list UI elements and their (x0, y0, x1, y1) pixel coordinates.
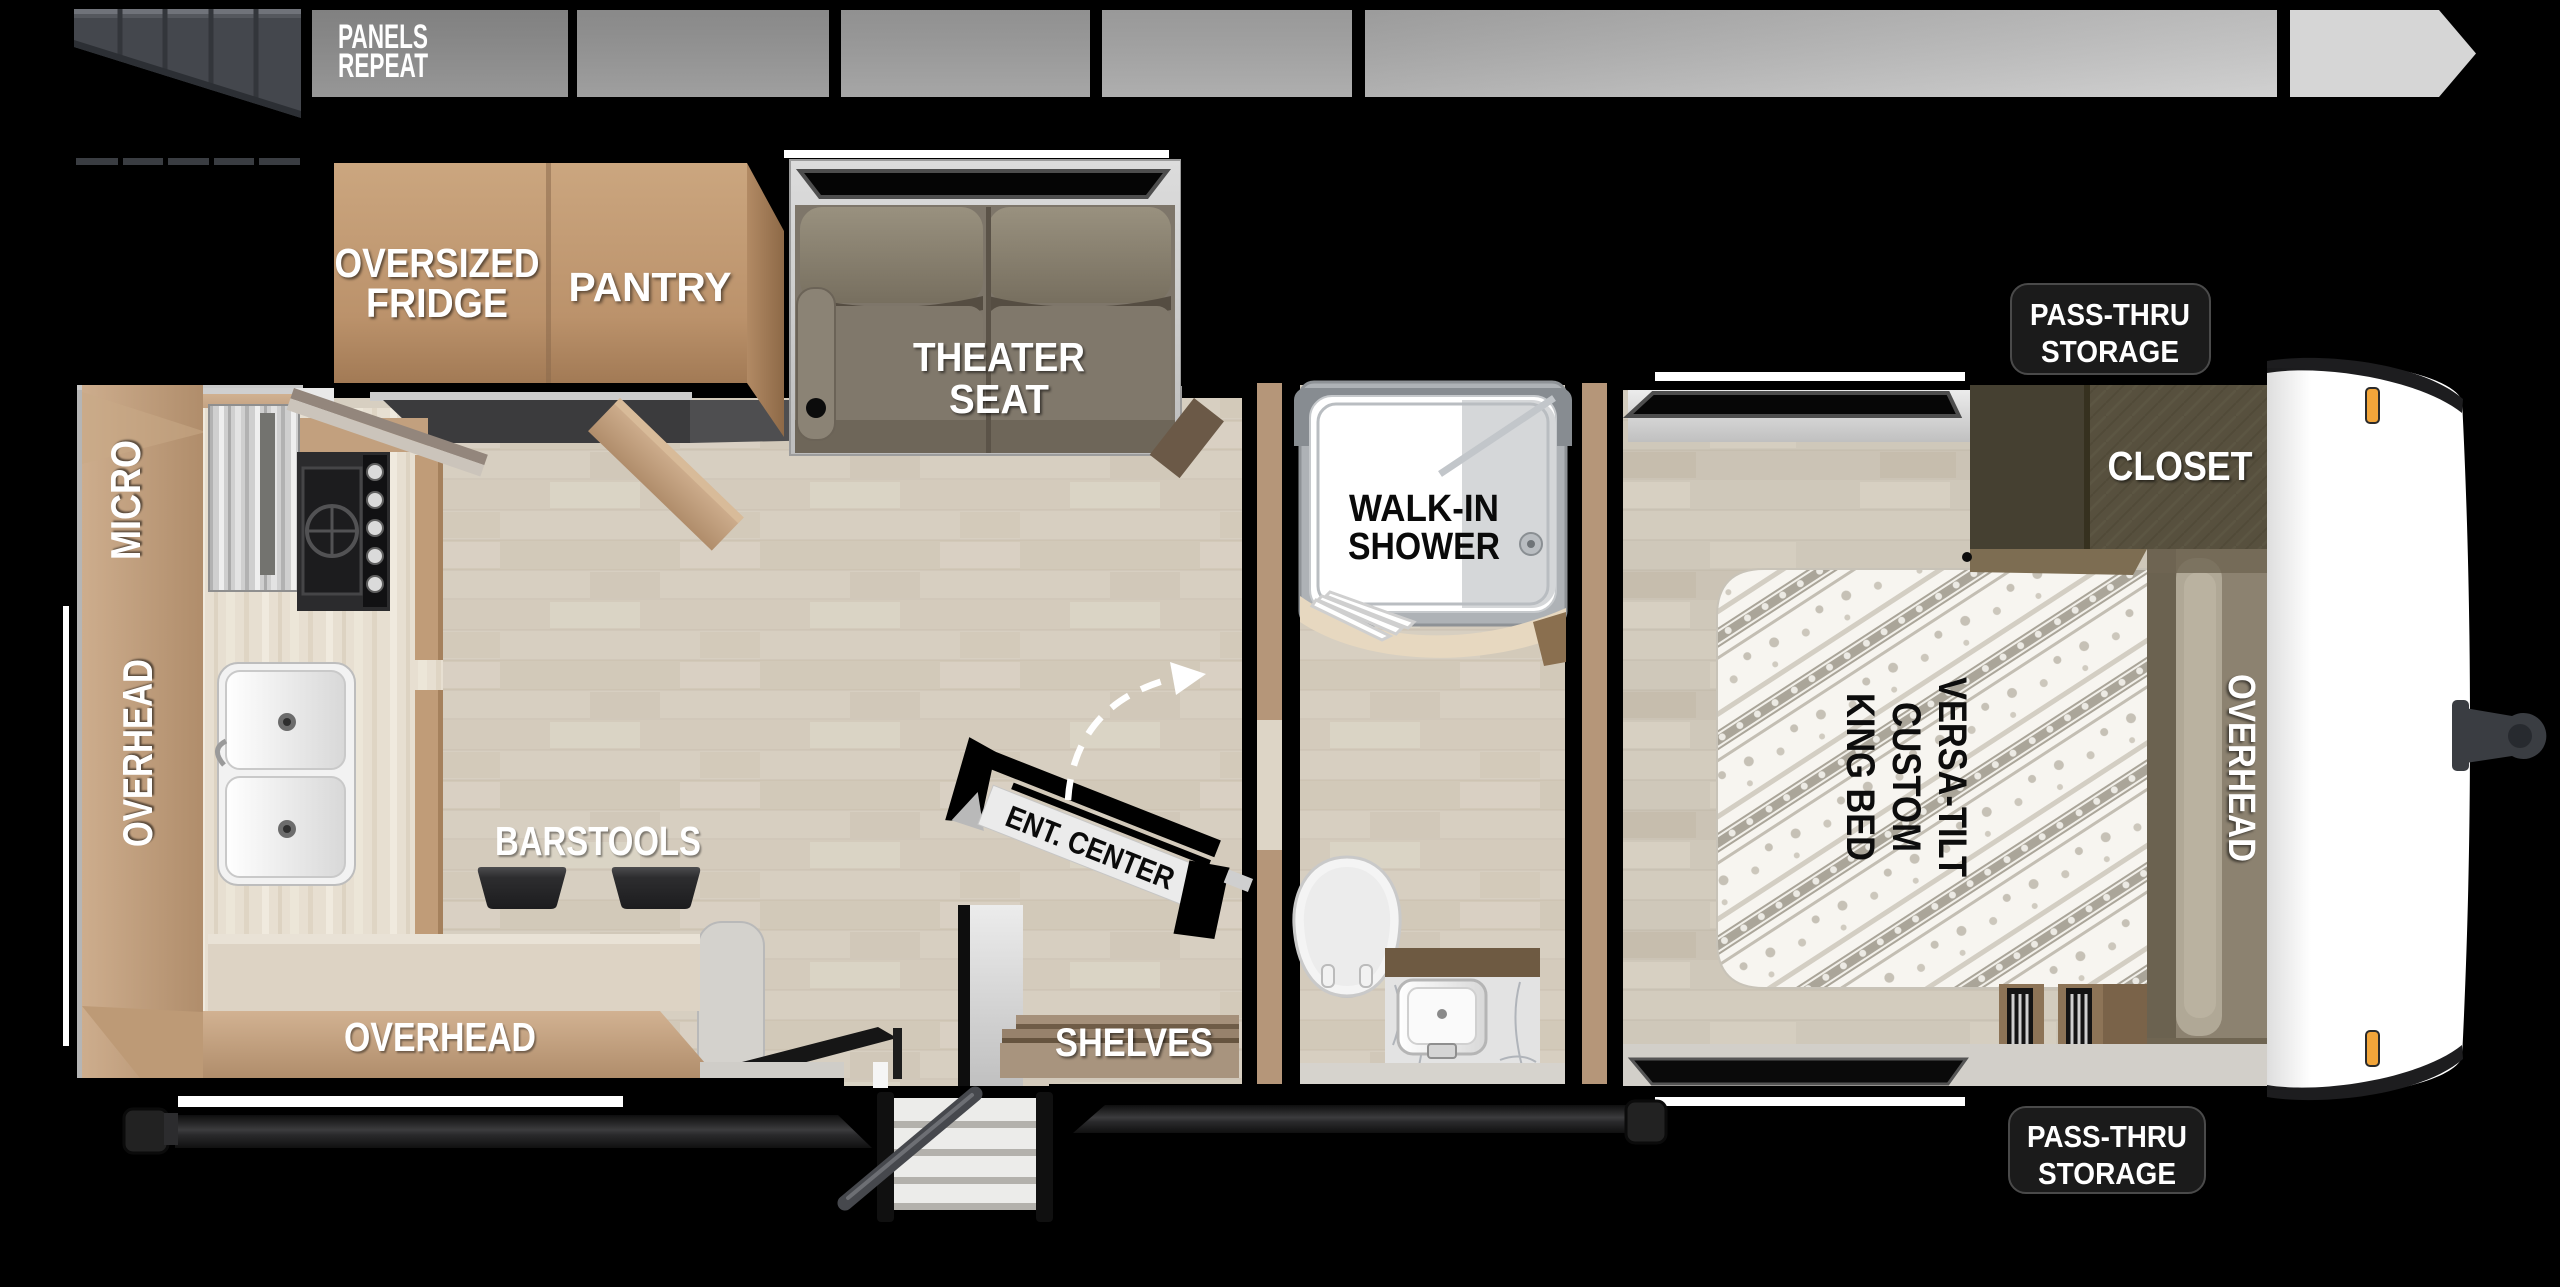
svg-text:SHELVES: SHELVES (1055, 1021, 1213, 1065)
svg-text:STORAGE: STORAGE (2041, 334, 2179, 369)
svg-text:STORAGE: STORAGE (2038, 1156, 2176, 1191)
svg-text:WALK-IN: WALK-IN (1349, 488, 1499, 530)
svg-text:OVERHEAD: OVERHEAD (2220, 674, 2262, 862)
svg-text:OVERHEAD: OVERHEAD (114, 659, 161, 847)
svg-text:BARSTOOLS: BARSTOOLS (495, 818, 701, 864)
svg-text:REPEAT: REPEAT (338, 47, 428, 85)
svg-text:KING BED: KING BED (1838, 693, 1882, 861)
svg-text:CUSTOM: CUSTOM (1884, 702, 1928, 852)
svg-text:MICRO: MICRO (102, 440, 149, 560)
svg-text:CLOSET: CLOSET (2108, 443, 2253, 489)
svg-text:OVERHEAD: OVERHEAD (344, 1014, 536, 1060)
svg-text:THEATER: THEATER (913, 334, 1085, 380)
svg-text:VERSA-TILT: VERSA-TILT (1930, 677, 1974, 877)
svg-text:PANTRY: PANTRY (569, 264, 732, 310)
svg-text:PASS-THRU: PASS-THRU (2030, 297, 2190, 332)
svg-text:FRIDGE: FRIDGE (366, 280, 508, 326)
svg-text:PASS-THRU: PASS-THRU (2027, 1119, 2187, 1154)
svg-text:SHOWER: SHOWER (1348, 526, 1500, 568)
svg-text:SEAT: SEAT (949, 376, 1049, 422)
